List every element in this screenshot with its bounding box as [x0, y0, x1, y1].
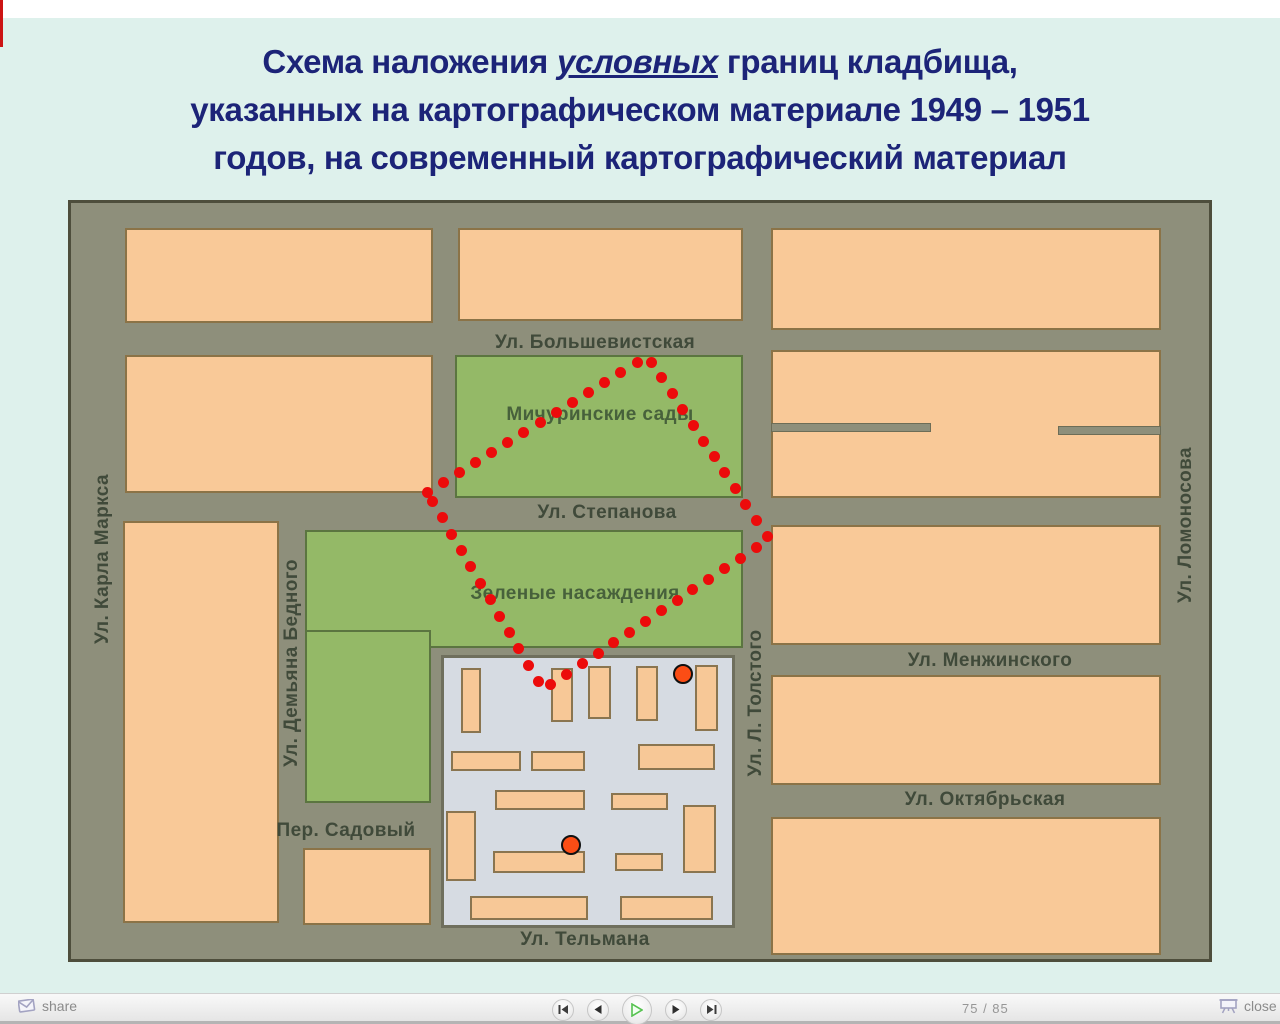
boundary-dot-27 — [751, 542, 762, 553]
boundary-dot-3 — [454, 467, 465, 478]
block-north-center — [458, 228, 743, 321]
boundary-dot-5 — [486, 447, 497, 458]
presentation-viewer: Схема наложенияусловныхграниц кладбища, … — [0, 0, 1280, 1024]
title-line-1: Схема наложенияусловныхграниц кладбища, — [40, 38, 1240, 86]
residential-building-7 — [531, 751, 585, 771]
residential-building-4 — [636, 666, 658, 721]
boundary-dot-42 — [523, 660, 534, 671]
boundary-dot-37 — [593, 648, 604, 659]
block-nw-1 — [125, 228, 433, 323]
boundary-dot-25 — [751, 515, 762, 526]
cemetery-marker-1 — [673, 664, 693, 684]
residential-building-9 — [495, 790, 585, 810]
residential-building-3 — [588, 666, 611, 719]
boundary-dot-20 — [698, 436, 709, 447]
last-slide-button[interactable] — [700, 999, 722, 1021]
next-slide-button[interactable] — [665, 999, 687, 1021]
boundary-dot-11 — [583, 387, 594, 398]
boundary-dot-13 — [615, 367, 626, 378]
street-stepanova: Ул. Степанова — [537, 502, 676, 524]
boundary-dot-47 — [475, 578, 486, 589]
street-telmana: Ул. Тельмана — [520, 929, 649, 951]
block-ne-1 — [771, 228, 1161, 330]
boundary-dot-50 — [446, 529, 457, 540]
boundary-dot-8 — [535, 417, 546, 428]
residential-building-10 — [611, 793, 668, 810]
previous-icon — [594, 1005, 602, 1014]
boundary-dot-52 — [427, 496, 438, 507]
residential-building-1 — [461, 668, 481, 733]
boundary-dot-4 — [470, 457, 481, 468]
street-karla-marksa: Ул. Карла Маркса — [92, 474, 114, 644]
residential-building-6 — [451, 751, 521, 771]
residential-building-11 — [446, 811, 476, 881]
boundary-dot-35 — [624, 627, 635, 638]
slide-canvas: Схема наложенияусловныхграниц кладбища, … — [0, 18, 1280, 975]
boundary-dot-34 — [640, 616, 651, 627]
boundary-dot-9 — [551, 407, 562, 418]
skip-to-end-icon — [706, 1005, 717, 1014]
street-oktyabrskaya: Ул. Октябрьская — [905, 789, 1066, 811]
first-slide-button[interactable] — [552, 999, 574, 1021]
boundary-dot-24 — [740, 499, 751, 510]
boundary-dot-30 — [703, 574, 714, 585]
boundary-dot-41 — [533, 676, 544, 687]
slide-navigation — [552, 994, 722, 1024]
street-lomonosova: Ул. Ломоносова — [1175, 447, 1197, 603]
residential-building-13 — [615, 853, 663, 871]
boundary-dot-49 — [456, 545, 467, 556]
boundary-dot-45 — [494, 611, 505, 622]
close-label: close — [1244, 998, 1277, 1014]
presentation-screen-icon — [1219, 998, 1238, 1014]
boundary-dot-10 — [567, 397, 578, 408]
street-demyana-bednogo: Ул. Демьяна Бедного — [281, 559, 303, 767]
residential-building-15 — [470, 896, 588, 920]
title-emphasis: условных — [557, 43, 718, 80]
viewer-toolbar: share 75 / 85 — [0, 993, 1280, 1024]
boundary-dot-12 — [599, 377, 610, 388]
boundary-dot-6 — [502, 437, 513, 448]
title-line-2: указанных на картографическом материале … — [40, 86, 1240, 134]
boundary-dot-2 — [438, 477, 449, 488]
share-label: share — [42, 998, 77, 1014]
street-sadovy: Пер. Садовый — [277, 820, 416, 842]
boundary-dot-38 — [577, 658, 588, 669]
boundary-dot-15 — [646, 357, 657, 368]
boundary-dot-17 — [667, 388, 678, 399]
envelope-icon — [18, 999, 36, 1013]
street-bolshevistskaya: Ул. Большевистская — [495, 332, 695, 354]
next-icon — [672, 1005, 680, 1014]
block-east-4 — [771, 675, 1161, 785]
block-west-tall — [123, 521, 279, 923]
play-icon — [631, 1003, 643, 1017]
boundary-dot-39 — [561, 669, 572, 680]
residential-building-8 — [638, 744, 715, 770]
residential-building-5 — [695, 665, 718, 731]
boundary-dot-46 — [485, 594, 496, 605]
share-button[interactable]: share — [18, 998, 77, 1014]
boundary-dot-7 — [518, 427, 529, 438]
boundary-dot-19 — [688, 420, 699, 431]
boundary-dot-32 — [672, 595, 683, 606]
close-button[interactable]: close — [1219, 998, 1277, 1014]
cemetery-marker-2 — [561, 835, 581, 855]
lane-cut-right — [1058, 426, 1161, 435]
street-menzhinskogo: Ул. Менжинского — [908, 650, 1072, 672]
green-michurinskie — [455, 355, 743, 498]
area-zelenye-nasazhdeniya: Зеленые насаждения — [470, 583, 679, 605]
boundary-dot-51 — [437, 512, 448, 523]
slide-title: Схема наложенияусловныхграниц кладбища, … — [40, 38, 1240, 182]
block-east-3 — [771, 525, 1161, 645]
residential-building-16 — [620, 896, 713, 920]
block-nw-2 — [125, 355, 433, 493]
page-counter: 75 / 85 — [962, 1001, 1009, 1016]
block-east-5 — [771, 817, 1161, 955]
boundary-dot-26 — [762, 531, 773, 542]
title-line-3: годов, на современный картографический м… — [40, 134, 1240, 182]
boundary-dot-43 — [513, 643, 524, 654]
top-strip — [0, 0, 1280, 18]
play-button[interactable] — [622, 995, 652, 1024]
boundary-dot-14 — [632, 357, 643, 368]
residential-building-14 — [683, 805, 716, 873]
green-nasazhdeniya-arm — [305, 630, 431, 803]
street-l-tolstogo: Ул. Л. Толстого — [745, 630, 767, 777]
city-map: Ул. БольшевистскаяУл. СтепановаУл. Менжи… — [68, 200, 1212, 962]
skip-to-start-icon — [558, 1005, 569, 1014]
lane-cut-left — [771, 423, 931, 432]
boundary-dot-23 — [730, 483, 741, 494]
block-sadovy — [303, 848, 431, 925]
previous-slide-button[interactable] — [587, 999, 609, 1021]
boundary-dot-28 — [735, 553, 746, 564]
boundary-dot-44 — [504, 627, 515, 638]
